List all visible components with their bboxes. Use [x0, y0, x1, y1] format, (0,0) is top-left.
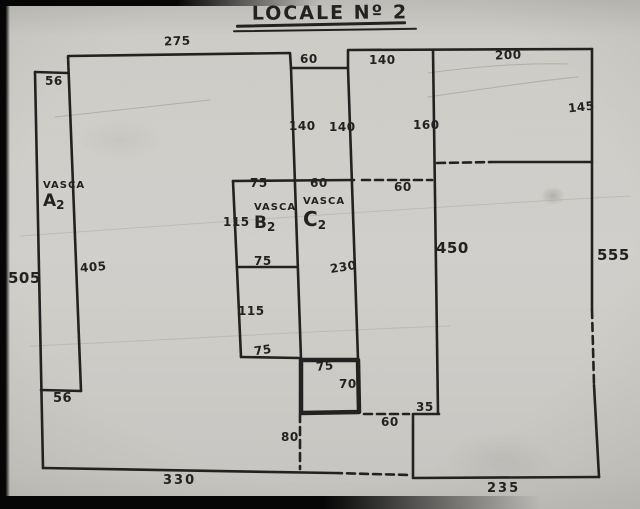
dim-notch-60: 60	[300, 53, 318, 65]
vasca-b2-left-wall	[233, 181, 241, 357]
dim-col-140-left: 140	[289, 120, 316, 132]
dim-top-left-56: 56	[45, 75, 63, 87]
dim-step-35: 35	[416, 401, 434, 413]
floor-plan-photo: LOCALE Nº 2 275 56 60 140 200 140 140 16…	[0, 0, 640, 509]
dim-a2-bottom-56: 56	[53, 392, 72, 405]
vasca-a2-name: VASCA	[43, 181, 85, 191]
right-wall-lower	[594, 385, 599, 477]
dashed-bottom	[334, 473, 409, 475]
dim-opening-60-bottom: 60	[381, 416, 399, 428]
dim-wall-450: 450	[436, 241, 469, 256]
dim-right-height-555: 555	[597, 248, 630, 263]
bottom-right-wall	[413, 414, 599, 478]
vasca-c2-id: C2	[303, 209, 345, 231]
dim-lower-box-75: 75	[253, 343, 272, 357]
dim-left-height-505: 505	[8, 271, 41, 286]
corner-56-top	[35, 72, 68, 73]
vasca-b2-name: VASCA	[254, 203, 296, 213]
vasca-b2-bottom-wall	[241, 357, 299, 358]
vasca-a2-right-wall	[68, 56, 81, 391]
photo-edge-left	[0, 0, 10, 509]
floor-plan-drawing	[0, 0, 640, 509]
dim-opening-80: 80	[281, 431, 299, 443]
dim-top-width: 275	[164, 35, 191, 48]
dim-room-160: 160	[413, 119, 440, 131]
dim-bottom-235: 235	[487, 482, 520, 495]
room-label-vasca-b2: VASCA B2	[254, 203, 296, 233]
vasca-a2-id: A2	[43, 193, 85, 211]
dashed-topright	[437, 162, 494, 163]
dim-a2-height-405: 405	[80, 260, 108, 274]
room-label-vasca-c2: VASCA C2	[303, 197, 345, 231]
room-label-vasca-a2: VASCA A2	[43, 181, 85, 211]
dim-small-box-70: 70	[339, 378, 357, 390]
dashed-right-wall	[592, 310, 594, 385]
dim-right-145: 145	[567, 100, 595, 115]
wall-450	[433, 50, 438, 413]
dim-opening-60-mid: 60	[394, 181, 412, 193]
vasca-b2-id: B2	[254, 215, 296, 233]
dim-top-right-200: 200	[495, 49, 522, 62]
dim-b2-top-75: 75	[250, 177, 268, 189]
dim-top-room-140: 140	[369, 54, 396, 66]
dim-small-box-75: 75	[315, 359, 334, 373]
dim-b2-bottom-75: 75	[254, 255, 272, 267]
dim-c2-top-60: 60	[310, 177, 328, 189]
vasca-c2-name: VASCA	[303, 197, 345, 207]
dim-bottom-330: 330	[163, 474, 196, 487]
photo-edge-bottom	[0, 496, 540, 509]
dim-lower-box-115: 115	[238, 305, 265, 317]
dim-col-140-right: 140	[329, 121, 356, 133]
dim-b2-left-115: 115	[223, 216, 250, 228]
